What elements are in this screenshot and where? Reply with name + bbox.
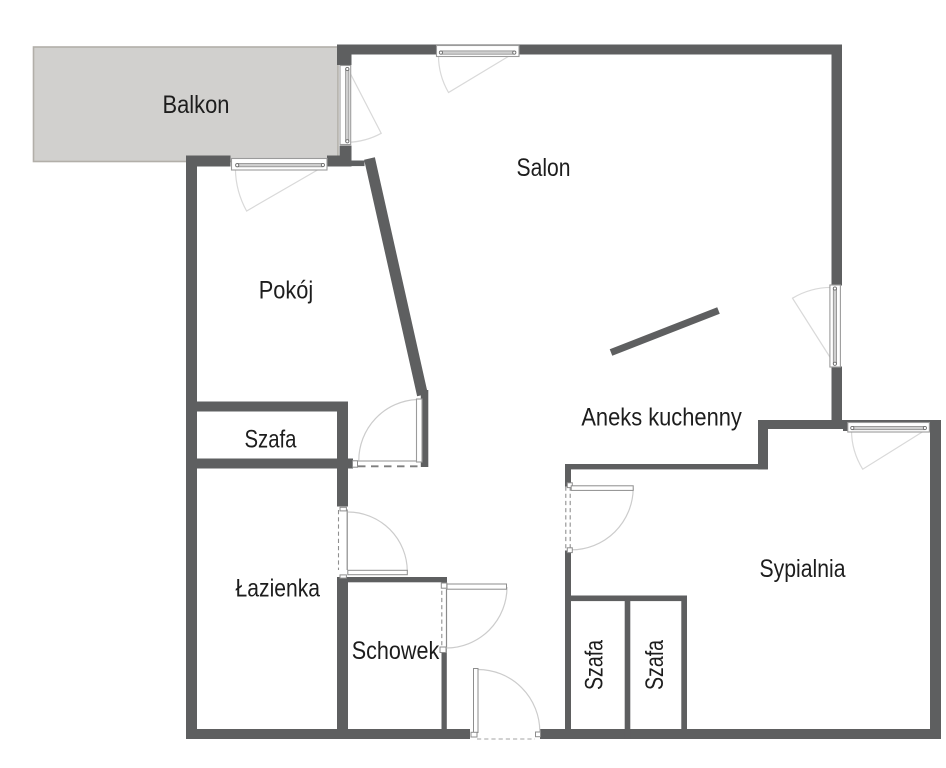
svg-text:Salon: Salon <box>517 154 571 182</box>
svg-text:Łazienka: Łazienka <box>236 575 321 603</box>
svg-text:Schowek: Schowek <box>352 637 440 665</box>
svg-text:Szafa: Szafa <box>641 640 669 690</box>
svg-text:Szafa: Szafa <box>581 640 609 690</box>
svg-text:Balkon: Balkon <box>163 91 230 119</box>
svg-text:Pokój: Pokój <box>259 277 314 305</box>
svg-text:Szafa: Szafa <box>245 426 297 454</box>
svg-text:Sypialnia: Sypialnia <box>760 555 846 583</box>
svg-text:Aneks kuchenny: Aneks kuchenny <box>581 404 742 432</box>
